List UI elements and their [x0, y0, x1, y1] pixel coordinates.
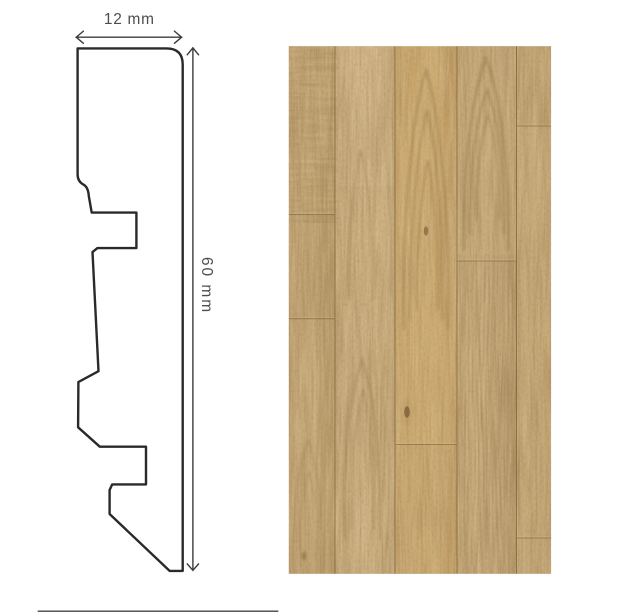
svg-text:12 mm: 12 mm: [104, 11, 155, 28]
svg-text:60 mm: 60 mm: [198, 257, 215, 314]
